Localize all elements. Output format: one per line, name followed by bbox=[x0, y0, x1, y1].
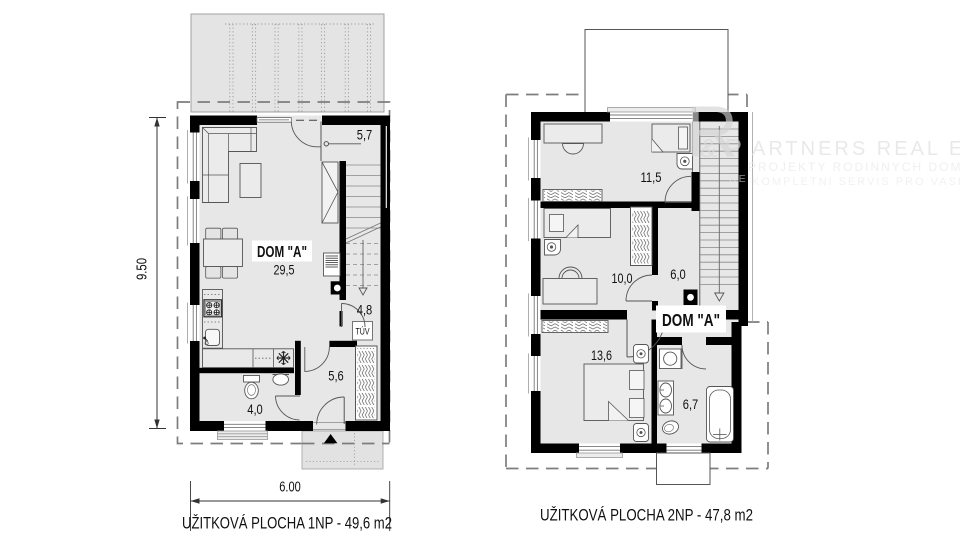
svg-text:4,0: 4,0 bbox=[247, 401, 263, 417]
svg-text:& P: & P bbox=[700, 133, 742, 163]
svg-text:6.00: 6.00 bbox=[279, 480, 301, 496]
svg-text:29,5: 29,5 bbox=[274, 262, 295, 278]
svg-text:6,0: 6,0 bbox=[670, 266, 686, 282]
svg-text:5,6: 5,6 bbox=[328, 368, 344, 384]
svg-text:ARTNERS REAL ESTATE: ARTNERS REAL ESTATE bbox=[752, 138, 960, 160]
svg-text:RE: RE bbox=[729, 173, 748, 185]
svg-text:10,0: 10,0 bbox=[612, 270, 633, 286]
svg-text:11,5: 11,5 bbox=[641, 169, 662, 185]
svg-text:UŽITKOVÁ PLOCHA 2NP - 47,8 m2: UŽITKOVÁ PLOCHA 2NP - 47,8 m2 bbox=[540, 506, 753, 525]
svg-text:TÚV: TÚV bbox=[356, 327, 370, 338]
svg-text:PROJEKTY RODINNYCH DOMU A STAV: PROJEKTY RODINNYCH DOMU A STAVEB bbox=[748, 160, 960, 174]
svg-text:9.50: 9.50 bbox=[135, 258, 151, 280]
svg-text:13,6: 13,6 bbox=[591, 347, 612, 363]
svg-text:DOM "A": DOM "A" bbox=[257, 244, 307, 261]
svg-text:KOMPLETNI SERVIS PRO VASE BYDL: KOMPLETNI SERVIS PRO VASE BYDLENI bbox=[752, 176, 960, 188]
svg-text:UŽITKOVÁ PLOCHA 1NP - 49,6 m2: UŽITKOVÁ PLOCHA 1NP - 49,6 m2 bbox=[182, 514, 392, 533]
svg-text:5,7: 5,7 bbox=[357, 127, 373, 143]
svg-text:DOM "A": DOM "A" bbox=[662, 310, 720, 330]
svg-text:4,8: 4,8 bbox=[357, 302, 373, 318]
svg-text:6,7: 6,7 bbox=[683, 396, 699, 412]
